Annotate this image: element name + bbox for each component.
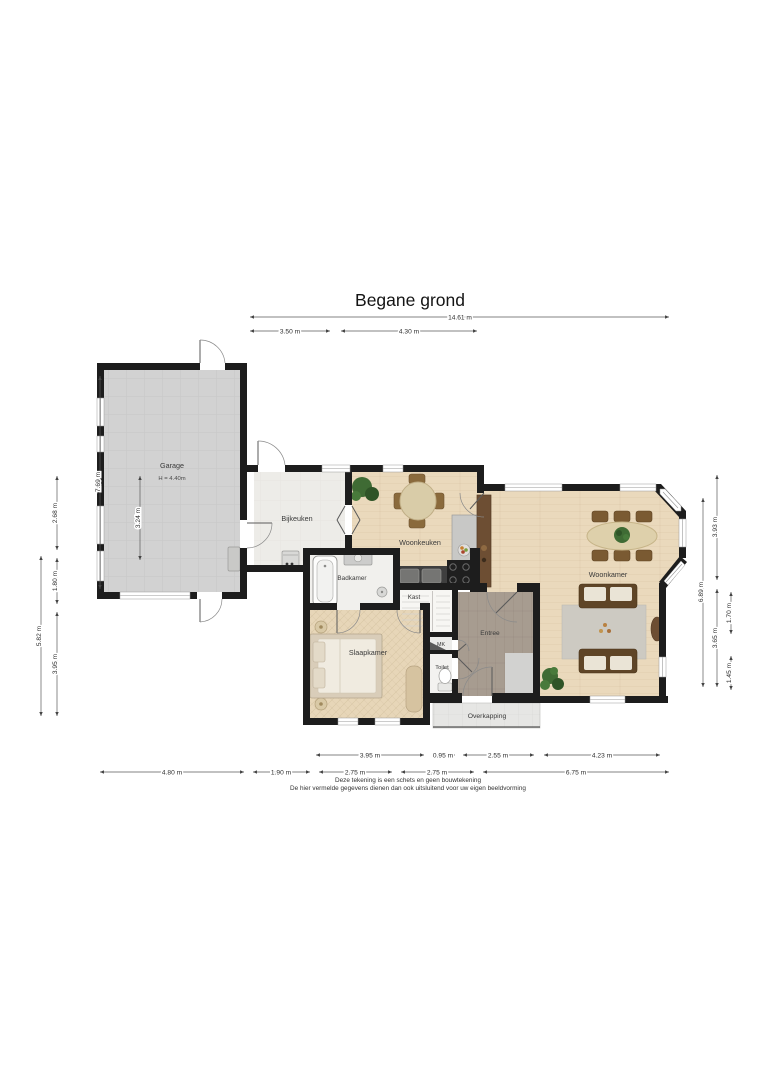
dim-label: 1.45 m (726, 662, 733, 683)
dim-label: 0.95 m (433, 753, 454, 760)
round-table (400, 482, 436, 520)
dim-label: 2.75 m (427, 770, 448, 777)
window-icon (97, 398, 104, 426)
dim-label: 7.69 m (95, 471, 102, 492)
dim-label: 2.55 m (488, 753, 509, 760)
window-icon (659, 657, 666, 677)
dim-label: 1.90 m (271, 770, 292, 777)
woonkamer-label: Woonkamer (589, 570, 628, 579)
door-icon (200, 340, 225, 363)
sink-icon (400, 569, 419, 583)
window-icon (97, 436, 104, 452)
chair-icon (592, 550, 608, 561)
door-icon (258, 441, 285, 465)
dim-label: 5.82 m (36, 625, 43, 646)
dim-label: 3.65 m (712, 627, 719, 648)
window-icon (620, 484, 656, 491)
pillow-icon (313, 668, 325, 688)
window-icon (97, 506, 104, 544)
dim-label: 1.80 m (52, 570, 59, 591)
dim-label: 2.68 m (52, 502, 59, 523)
dim-label: 4.80 m (162, 770, 183, 777)
fruit-bowl-icon (458, 544, 470, 556)
chair-icon (636, 511, 652, 522)
dim-label: 4.30 m (399, 329, 420, 336)
toilet-icon (438, 669, 452, 692)
dim-label: 1.70 m (726, 602, 733, 623)
garage-cabinet (228, 547, 240, 571)
window-icon (383, 465, 403, 472)
window-icon (322, 465, 350, 472)
window-icon (590, 696, 625, 703)
dim-label: 4.23 m (592, 753, 613, 760)
chair-icon (614, 550, 630, 561)
floorplan-page: Begane grond (0, 0, 764, 1080)
dim-label: 3.95 m (360, 753, 381, 760)
chair-icon (592, 511, 608, 522)
entree-label: Entree (480, 630, 500, 637)
stove-icon (447, 560, 472, 587)
livingroom-dining-set (587, 511, 657, 561)
dim-label: 3.50 m (280, 329, 301, 336)
floorplan-drawing: Begane grond (0, 0, 764, 1080)
dim-label: 6.89 m (698, 581, 705, 602)
disclaimer-line-2: De hier vermelde gegevens dienen dan ook… (290, 785, 526, 792)
window-icon (97, 551, 104, 581)
toilet-label: Toilet (435, 665, 449, 671)
window-icon (679, 519, 686, 547)
entree-mat (505, 653, 533, 693)
window-icon (120, 592, 190, 599)
slaapkamer-label: Slaapkamer (349, 648, 388, 657)
dim-label: 3.95 m (52, 653, 59, 674)
door-icon (200, 599, 222, 622)
dim-label: 3.24 m (135, 507, 142, 528)
window-icon (505, 484, 562, 491)
window-icon (338, 718, 358, 725)
disclaimer-line-1: Deze tekening is een schets en geen bouw… (335, 777, 481, 784)
bedroom-bench (406, 666, 422, 712)
bijkeuken-label: Bijkeuken (281, 514, 312, 523)
dim-label: 3.93 m (712, 516, 719, 537)
overkapping-label: Overkapping (468, 713, 507, 720)
chair-icon (636, 550, 652, 561)
dim-label: 14.61 m (448, 315, 472, 322)
garage-label: Garage (160, 461, 184, 470)
sink-icon (422, 569, 441, 583)
kast-label: Kast (408, 594, 421, 601)
chair-icon (614, 511, 630, 522)
badkamer-label: Badkamer (337, 575, 367, 582)
dim-label: 6.75 m (566, 770, 587, 777)
dim-label: 2.75 m (345, 770, 366, 777)
woonkeuken-label: Woonkeuken (399, 538, 441, 547)
disclaimer: Deze tekening is een schets en geen bouw… (290, 777, 526, 792)
window-icon (375, 718, 400, 725)
garage-height-note: H = 4.40m (158, 476, 185, 482)
page-title: Begane grond (355, 290, 465, 310)
pillow-icon (313, 642, 325, 662)
mk-label: MK (437, 642, 445, 648)
